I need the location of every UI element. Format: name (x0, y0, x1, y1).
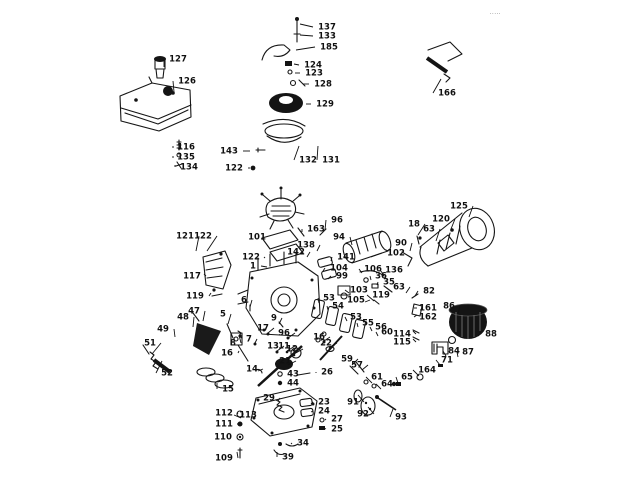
leader-line (345, 317, 347, 321)
callout-layer: 1271261161351341371331851241231281291431… (144, 23, 497, 464)
fuel-tank-group (120, 56, 191, 131)
part-number-label: 128 (314, 80, 332, 90)
part-number-label: 101 (248, 233, 266, 243)
part-number-label: 87 (462, 348, 474, 358)
part-number-label: 110 (214, 433, 232, 443)
part-number-label: 88 (485, 330, 497, 340)
part-number-label: 99 (336, 272, 348, 282)
part-number-label: 103 (350, 286, 368, 296)
part-number-label: 121 (176, 232, 194, 242)
part-number-label: 39 (282, 453, 294, 463)
part-number-label: 63 (393, 283, 405, 293)
part-number-label: 134 (180, 163, 198, 173)
part-number-label: 71 (441, 356, 453, 366)
part-number-label: 120 (432, 215, 450, 225)
part-number-label: 163 (307, 225, 325, 235)
leader-line (469, 206, 473, 217)
part-number-label: 25 (331, 425, 343, 435)
part-number-label: 102 (387, 249, 405, 259)
leader-line (174, 329, 175, 337)
part-number-label: 129 (316, 100, 334, 110)
part-number-label: 9 (271, 314, 277, 324)
part-number-label: 164 (418, 366, 436, 376)
leader-line (371, 253, 382, 257)
part-number-label: 119 (372, 291, 390, 301)
air-cleaner-group (251, 17, 305, 170)
part-number-label: 112 (215, 409, 233, 419)
part-number-label: 142 (287, 248, 305, 258)
corner-mark: ····· (490, 11, 501, 16)
leader-line (294, 64, 299, 65)
part-number-label: 52 (161, 369, 173, 379)
part-number-label: 48 (177, 313, 189, 323)
leader-line (345, 290, 349, 293)
leader-line (307, 252, 310, 257)
leader-line (406, 287, 410, 293)
part-number-label: 15 (222, 385, 234, 395)
leader-line (370, 276, 371, 280)
leader-line (365, 300, 370, 302)
part-number-label: 53 (350, 313, 362, 323)
leader-line (238, 351, 239, 353)
part-number-label: 51 (144, 339, 156, 349)
leader-line (291, 443, 292, 444)
part-number-label: 109 (215, 454, 233, 464)
part-number-label: 84 (448, 347, 460, 357)
part-number-label: 94 (333, 233, 345, 243)
part-number-label: 125 (450, 202, 468, 212)
part-number-label: 16 (221, 349, 233, 359)
part-number-label: 29 (263, 394, 275, 404)
leader-line (300, 24, 313, 27)
leader-line (327, 306, 328, 310)
part-number-label: 166 (438, 89, 456, 99)
part-number-label: 26 (321, 368, 333, 378)
leader-line (250, 300, 252, 307)
part-number-label: 131 (322, 156, 340, 166)
leader-line (173, 81, 174, 92)
part-number-label: 64 (381, 380, 393, 390)
part-number-label: 47 (188, 307, 200, 317)
part-number-label: 162 (419, 313, 437, 323)
leader-line (436, 229, 440, 241)
part-number-label: 122 (194, 232, 212, 242)
leader-line (193, 317, 194, 327)
bracket-166-group (427, 42, 462, 82)
part-number-label: 117 (183, 272, 201, 282)
part-number-label: 123 (305, 69, 323, 79)
part-number-label: 127 (169, 55, 187, 65)
exploded-parts-figure: ····· (0, 0, 640, 480)
part-number-label: 105 (347, 296, 365, 306)
part-number-label: 24 (318, 407, 330, 417)
part-number-label: 60 (381, 328, 393, 338)
leader-line (209, 293, 211, 296)
air-baffle-group (193, 313, 221, 355)
part-number-label: 92 (357, 410, 369, 420)
part-number-label: 21 (279, 357, 291, 367)
leader-line (317, 146, 318, 160)
part-number-label: 63 (423, 225, 435, 235)
part-number-label: 93 (395, 413, 407, 423)
leader-line (317, 245, 320, 251)
part-number-label: 141 (337, 253, 355, 263)
leader-line (255, 339, 257, 343)
part-number-label: 1 (250, 262, 256, 272)
part-number-label: 49 (157, 325, 169, 335)
part-number-label: 126 (178, 77, 196, 87)
part-number-label: 96 (331, 216, 343, 226)
leader-line (376, 332, 378, 336)
leader-line (300, 35, 313, 36)
leader-line (237, 452, 238, 458)
part-number-label: 185 (320, 43, 338, 53)
part-number-label: 18 (408, 220, 420, 230)
leader-line (325, 419, 326, 420)
part-number-label: 44 (287, 379, 299, 389)
part-number-label: 116 (177, 143, 195, 153)
part-number-label: 7 (246, 335, 252, 345)
part-number-label: 14 (246, 365, 258, 375)
part-number-label: 96 (278, 329, 290, 339)
part-number-label: 27 (331, 415, 343, 425)
misc-small-parts-group (227, 294, 423, 412)
leader-line (264, 257, 265, 258)
diagram-canvas: ····· (0, 0, 640, 480)
part-number-label: 55 (362, 319, 374, 329)
blower-housing-group (420, 204, 500, 266)
part-number-label: 111 (215, 420, 233, 430)
part-number-label: 135 (177, 153, 195, 163)
leader-line (203, 311, 205, 321)
leader-line (296, 47, 315, 50)
part-number-label: 119 (186, 292, 204, 302)
leader-line (261, 266, 267, 267)
leader-line (390, 409, 393, 417)
breather-bracket-group (203, 251, 231, 296)
part-number-label: 86 (443, 302, 455, 312)
part-number-label: 12 (286, 345, 298, 355)
part-number-label: 57 (351, 361, 363, 371)
part-number-label: 82 (423, 287, 435, 297)
leader-line (410, 243, 412, 251)
part-number-label: 17 (257, 324, 269, 334)
part-number-label: 54 (332, 302, 344, 312)
part-number-label: 5 (220, 310, 226, 320)
part-number-label: 91 (347, 398, 359, 408)
part-number-label: 22 (320, 339, 332, 349)
leader-line (413, 339, 416, 342)
part-number-label: 132 (299, 156, 317, 166)
leader-line (357, 323, 358, 327)
part-number-label: 113 (239, 411, 257, 421)
part-number-label: 34 (297, 439, 309, 449)
part-number-label: 136 (385, 266, 403, 276)
part-number-label: 115 (393, 338, 411, 348)
part-number-label: 65 (401, 373, 413, 383)
part-number-label: 143 (220, 147, 238, 157)
leader-line (228, 314, 231, 324)
part-number-label: 8 (230, 339, 236, 349)
part-number-label: 122 (225, 164, 243, 174)
part-number-label: 90 (395, 239, 407, 249)
part-number-label: 133 (318, 32, 336, 42)
part-number-label: 6 (241, 296, 247, 306)
